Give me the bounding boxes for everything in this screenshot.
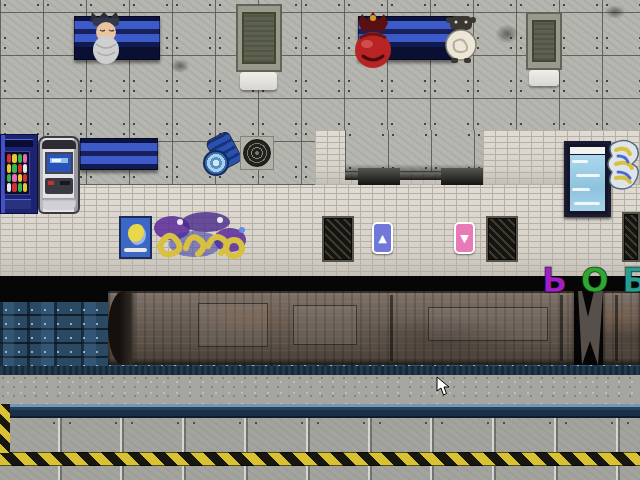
train-car[interactable]: [108, 291, 574, 365]
advert-poster[interactable]: [564, 141, 611, 217]
hazard-stripe: [0, 452, 640, 466]
manhole-disc: [243, 139, 271, 167]
edge-graffiti: [608, 136, 640, 194]
door-panel: [532, 20, 556, 62]
product: [18, 154, 22, 163]
coupling-diaphragm: [574, 291, 603, 365]
wall-vent: [322, 216, 354, 262]
graffiti-letter: Б: [622, 261, 640, 301]
vending-products: [4, 151, 30, 195]
station-door[interactable]: [526, 12, 562, 70]
poster-text-line: [574, 202, 600, 205]
train-seam: [615, 295, 618, 361]
wall-vent: [486, 216, 518, 262]
floor-stain: [490, 20, 524, 48]
station-door[interactable]: [236, 4, 282, 72]
wall-graffiti: [150, 210, 250, 264]
creature-sprite[interactable]: [442, 14, 480, 64]
poster-header: [570, 147, 605, 154]
product: [12, 164, 16, 173]
graffiti-letter: О: [581, 261, 610, 301]
down-direction-sign[interactable]: ▬ ▼: [454, 222, 475, 254]
game-viewport: • ▲ ▬ ▼ Ь О Б И: [0, 0, 640, 480]
poster-text-line: [572, 160, 588, 163]
train-door-panel: [293, 305, 357, 345]
train-car-next: [603, 291, 640, 365]
product: [12, 183, 16, 192]
train-seam: [560, 295, 563, 361]
hazard-stripe-corner: [0, 404, 10, 453]
ticket-machine[interactable]: [38, 136, 80, 214]
vending-tray: [5, 199, 31, 209]
train-seam: [390, 295, 393, 361]
product: [23, 174, 27, 183]
vending-display: [5, 139, 33, 147]
door-mat: [529, 70, 559, 86]
product: [18, 174, 22, 183]
floor-stain: [166, 56, 194, 76]
door-mat: [240, 72, 277, 90]
sleeping-man-sprite[interactable]: [84, 10, 130, 66]
machine-screen: [45, 152, 73, 174]
train-door-panel: [198, 303, 268, 347]
button-panel: [45, 178, 73, 194]
product: [12, 174, 16, 183]
product: [23, 183, 27, 192]
train-coupling-gap: [574, 291, 603, 365]
product: [23, 154, 27, 163]
door-panel: [242, 12, 276, 64]
floor-stain: [600, 2, 630, 22]
train-front-cap: [108, 291, 136, 365]
red-button: [48, 181, 54, 185]
vending-machine[interactable]: [0, 134, 38, 214]
product: [7, 164, 11, 173]
machine-base: [42, 198, 76, 210]
graffiti-letter: Ь: [542, 261, 568, 301]
product: [23, 164, 27, 173]
product: [18, 183, 22, 192]
mouse-cursor: [436, 376, 450, 396]
barrel-end-cap: [203, 150, 229, 176]
up-direction-sign[interactable]: • ▲: [372, 222, 393, 254]
product: [7, 183, 11, 192]
opposite-platform: [0, 418, 640, 480]
opposite-platform-edge: [0, 404, 640, 418]
poster-text-line: [576, 174, 600, 177]
down-arrow-icon: ▼: [460, 233, 468, 244]
poster-text-line: [572, 188, 590, 191]
product: [7, 154, 11, 163]
product: [18, 164, 22, 173]
train-door-panel: [428, 307, 548, 341]
poster-text-line: [124, 248, 147, 252]
small-poster[interactable]: [119, 216, 152, 259]
product: [7, 174, 11, 183]
wall-vent: [622, 212, 640, 262]
machine-top: [42, 140, 76, 149]
up-arrow-icon: ▲: [378, 233, 386, 244]
product: [12, 154, 16, 163]
screen-text-bar: [52, 159, 61, 162]
gravel-strip: [0, 375, 640, 404]
graffiti-word: Ь О Б И: [542, 261, 640, 301]
manhole-cover[interactable]: [240, 136, 274, 170]
red-character-sprite[interactable]: [350, 12, 396, 70]
bench[interactable]: [80, 138, 158, 170]
card-slot: [60, 181, 70, 185]
blue-barrel[interactable]: [203, 134, 239, 178]
poster-art: [128, 224, 144, 242]
